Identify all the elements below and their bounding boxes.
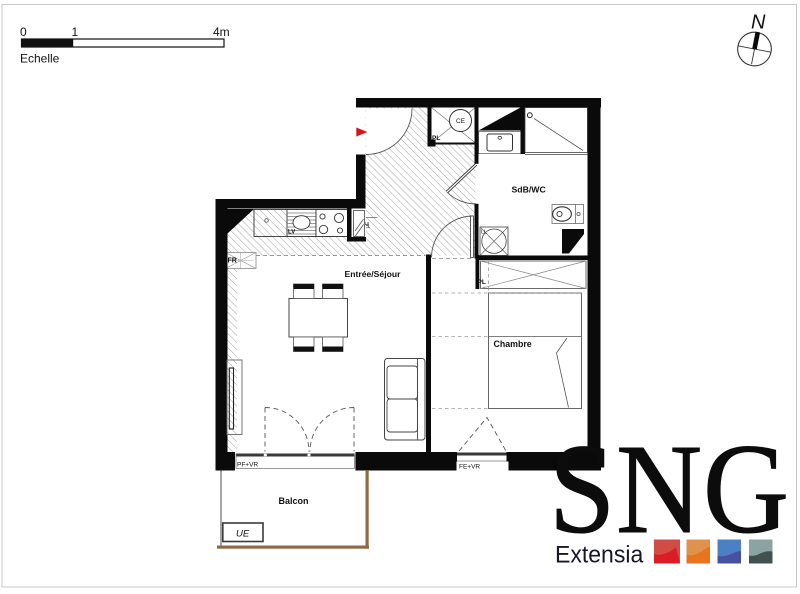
svg-text:SNG: SNG (549, 418, 790, 560)
svg-text:Echelle: Echelle (20, 52, 60, 66)
svg-text:0: 0 (20, 25, 27, 39)
svg-text:FE+VR: FE+VR (459, 463, 480, 470)
svg-text:4m: 4m (213, 25, 230, 39)
svg-text:1: 1 (72, 25, 79, 39)
svg-text:PF+VR: PF+VR (237, 462, 258, 469)
svg-text:PL: PL (478, 279, 486, 286)
svg-text:Entrée/Séjour: Entrée/Séjour (345, 269, 402, 279)
svg-text:Extensia: Extensia (555, 541, 644, 569)
svg-text:CE: CE (456, 118, 466, 125)
svg-text:UE: UE (236, 529, 250, 540)
svg-text:N: N (751, 12, 766, 34)
svg-text:Balcon: Balcon (278, 496, 308, 506)
svg-text:LL: LL (481, 230, 487, 236)
svg-text:LV: LV (288, 230, 295, 236)
svg-text:µE: µE (365, 221, 371, 228)
svg-text:FR: FR (228, 258, 237, 265)
svg-text:SdB/WC: SdB/WC (512, 185, 547, 195)
svg-text:Chambre: Chambre (494, 339, 532, 349)
